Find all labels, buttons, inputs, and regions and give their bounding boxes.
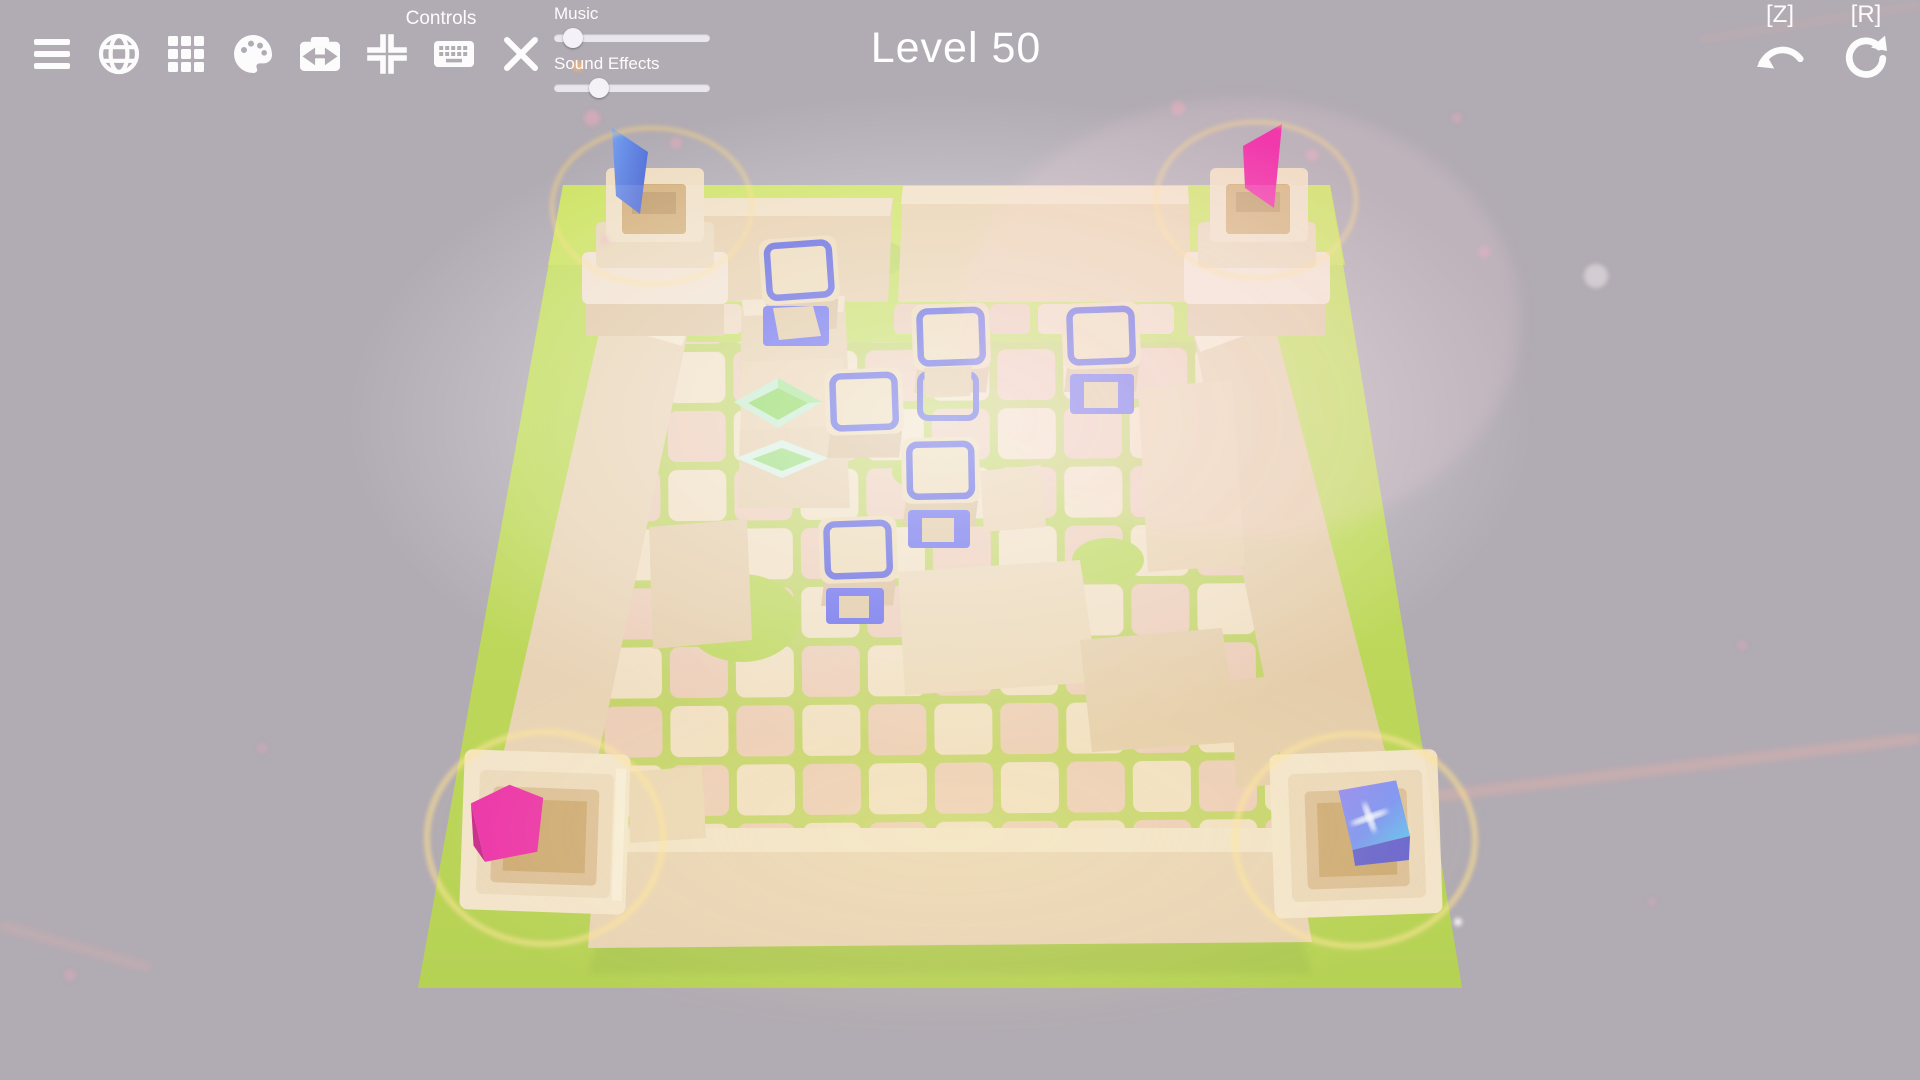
sound-effects-slider-handle[interactable]	[589, 78, 609, 98]
controls-label: Controls	[406, 8, 477, 30]
music-slider-handle[interactable]	[563, 28, 583, 48]
haze	[340, 90, 1540, 1040]
music-slider[interactable]	[554, 28, 710, 48]
redo-shortcut-label: [R]	[1834, 2, 1898, 28]
audio-panel: Music Sound Effects	[554, 4, 714, 104]
redo-button[interactable]: [R]	[1834, 2, 1898, 80]
grid-icon[interactable]	[160, 28, 212, 80]
menu-icon[interactable]	[26, 28, 78, 80]
undo-shortcut-label: [Z]	[1748, 2, 1812, 28]
globe-icon[interactable]	[93, 28, 145, 80]
keyboard-icon[interactable]	[428, 28, 480, 80]
redo-icon	[1839, 32, 1893, 80]
game-screen: Controls Music Sound Effects Level 50 [Z…	[0, 0, 1920, 1080]
sound-effects-label: Sound Effects	[554, 54, 714, 74]
music-label: Music	[554, 4, 714, 24]
center-focus-icon[interactable]	[361, 28, 413, 80]
undo-button[interactable]: [Z]	[1748, 2, 1812, 80]
level-title: Level 50	[871, 24, 1042, 73]
toolbar	[26, 28, 547, 80]
sound-effects-slider[interactable]	[554, 78, 710, 98]
undo-icon	[1753, 32, 1807, 80]
game-viewport[interactable]	[0, 0, 1920, 1080]
close-icon[interactable]	[495, 28, 547, 80]
sound-effects-slider-track[interactable]	[554, 84, 710, 92]
camera-flip-icon[interactable]	[294, 28, 346, 80]
palette-icon[interactable]	[227, 28, 279, 80]
